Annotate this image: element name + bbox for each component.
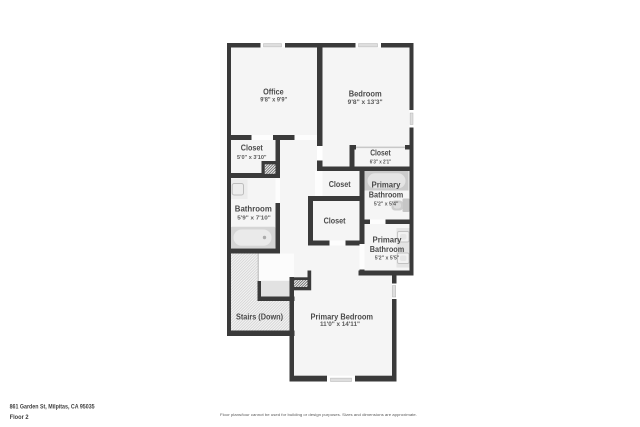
svg-text:Floor plans/tour cannot be use: Floor plans/tour cannot be used for buil… (220, 412, 417, 417)
svg-text:Primary: Primary (372, 180, 402, 189)
svg-text:Office: Office (263, 87, 284, 96)
svg-text:9'8" x 13'3": 9'8" x 13'3" (348, 100, 383, 106)
svg-text:5'9" x 7'10": 5'9" x 7'10" (237, 215, 271, 221)
svg-text:11'0" x 14'11": 11'0" x 14'11" (320, 322, 360, 328)
svg-text:Bathroom: Bathroom (369, 190, 404, 199)
svg-text:Bedroom: Bedroom (349, 90, 382, 99)
svg-text:Closet: Closet (370, 149, 391, 158)
svg-text:Closet: Closet (329, 180, 351, 189)
svg-text:6'3" x 2'1": 6'3" x 2'1" (370, 160, 392, 166)
svg-text:Closet: Closet (241, 143, 263, 152)
svg-text:5'2" x 5'5": 5'2" x 5'5" (375, 256, 400, 262)
svg-text:Floor 2: Floor 2 (10, 414, 29, 421)
svg-text:Primary Bedroom: Primary Bedroom (311, 312, 374, 321)
svg-text:861 Garden St, Milpitas, CA 95: 861 Garden St, Milpitas, CA 95035 (10, 403, 95, 410)
svg-text:5'0" x 3'10": 5'0" x 3'10" (237, 155, 267, 161)
svg-text:9'8" x 9'9": 9'8" x 9'9" (260, 98, 287, 104)
svg-text:Closet: Closet (324, 217, 346, 226)
svg-text:Primary: Primary (373, 236, 403, 245)
svg-text:Bathroom: Bathroom (235, 205, 272, 214)
svg-text:Stairs (Down): Stairs (Down) (236, 313, 283, 322)
svg-text:Bathroom: Bathroom (370, 245, 405, 254)
svg-text:5'2" x 5'4": 5'2" x 5'4" (374, 202, 399, 208)
